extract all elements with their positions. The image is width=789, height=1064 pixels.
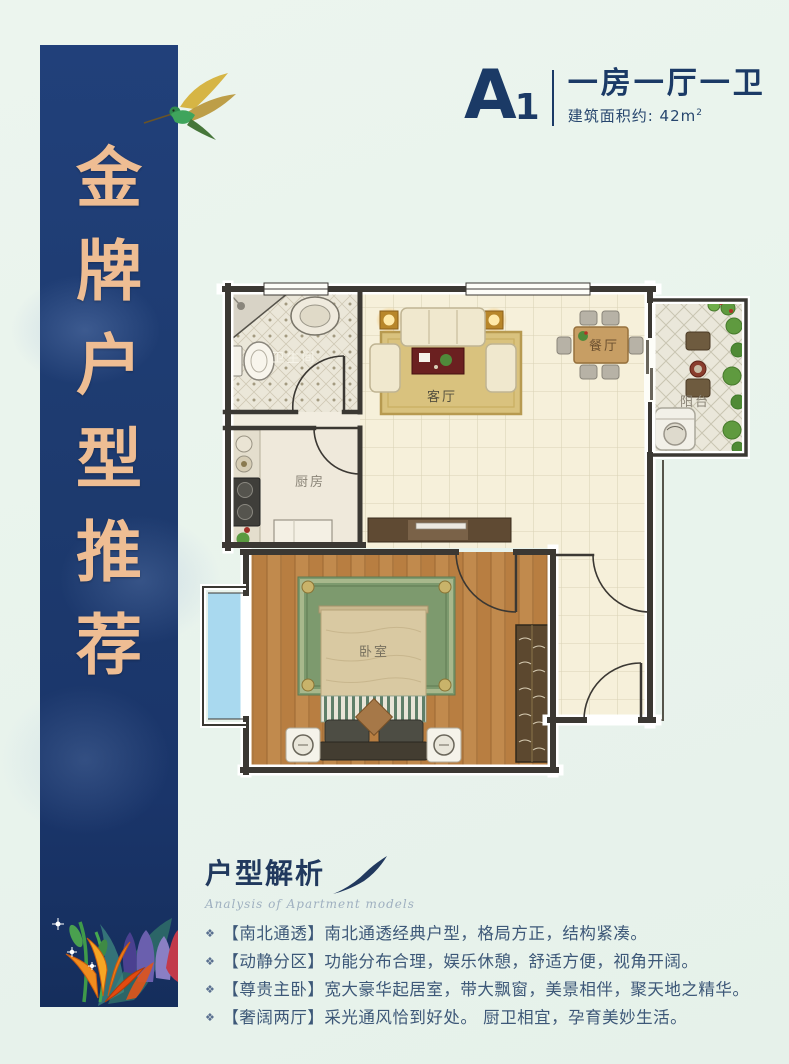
bullet-text: 【奢阔两厅】采光通风恰到好处。 厨卫相宜，孕育美妙生活。 [222,1004,687,1032]
bullet-text: 【南北通透】南北通透经典户型，格局方正，结构紧凑。 [222,920,647,948]
banner-char: 户 [40,332,178,398]
plan-area-text: 建筑面积约: 42m [568,107,697,125]
analysis-section: 户型解析 Analysis of Apartment models ❖ 【南北通… [205,858,771,1032]
bullet-marker-icon: ❖ [205,976,215,1004]
analysis-bullets: ❖ 【南北通透】南北通透经典户型，格局方正，结构紧凑。 ❖ 【动静分区】功能分布… [205,920,771,1032]
analysis-subtitle: Analysis of Apartment models [205,897,771,911]
plan-area: 建筑面积约: 42m2 [568,105,766,126]
bathroom-label: 卫生间 [271,351,316,366]
hummingbird-icon [136,67,240,151]
banner: 金 牌 户 型 推 荐 [40,45,178,1007]
bullet-text: 【动静分区】功能分布合理，娱乐休憩，舒适方便，视角开阔。 [222,948,698,976]
banner-char: 荐 [40,612,178,678]
bedroom-label: 卧室 [359,644,389,660]
plan-code: A [464,62,515,130]
bullet-text: 【尊贵主卧】宽大豪华起居室，带大飘窗，美景相伴，聚天地之精华。 [222,976,749,1004]
analysis-title: 户型解析 [205,858,325,890]
banner-char: 推 [40,519,178,585]
bullet-marker-icon: ❖ [205,1004,215,1032]
kitchen-label: 厨房 [295,474,325,490]
poster-root: 金 牌 户 型 推 荐 [0,0,789,1064]
plan-area-sup: 2 [696,108,703,118]
dining-label: 餐厅 [589,338,619,354]
plan-header: A 1 一房一厅一卫 建筑面积约: 42m2 [464,62,766,130]
bullet-marker-icon: ❖ [205,948,215,976]
plan-code-sub: 1 [515,90,540,126]
analysis-bullet: ❖ 【动静分区】功能分布合理，娱乐休憩，舒适方便，视角开阔。 [205,948,771,976]
analysis-title-row: 户型解析 [205,858,771,896]
bullet-marker-icon: ❖ [205,920,215,948]
flowers-illustration [40,832,178,1007]
balcony-slider-door [644,338,655,402]
header-divider [552,70,554,126]
banner-char: 牌 [40,238,178,304]
plan-title: 一房一厅一卫 [568,68,766,100]
analysis-bullet: ❖ 【南北通透】南北通透经典户型，格局方正，结构紧凑。 [205,920,771,948]
analysis-bullet: ❖ 【尊贵主卧】宽大豪华起居室，带大飘窗，美景相伴，聚天地之精华。 [205,976,771,1004]
feather-icon [333,856,389,896]
living-label: 客厅 [427,389,457,405]
analysis-bullet: ❖ 【奢阔两厅】采光通风恰到好处。 厨卫相宜，孕育美妙生活。 [205,1004,771,1032]
banner-char: 型 [40,426,178,492]
floorplan: 卫生间 厨房 客厅 餐厅 阳台 卧室 [198,280,773,795]
balcony-label: 阳台 [680,395,710,410]
banner-char: 金 [40,145,178,211]
